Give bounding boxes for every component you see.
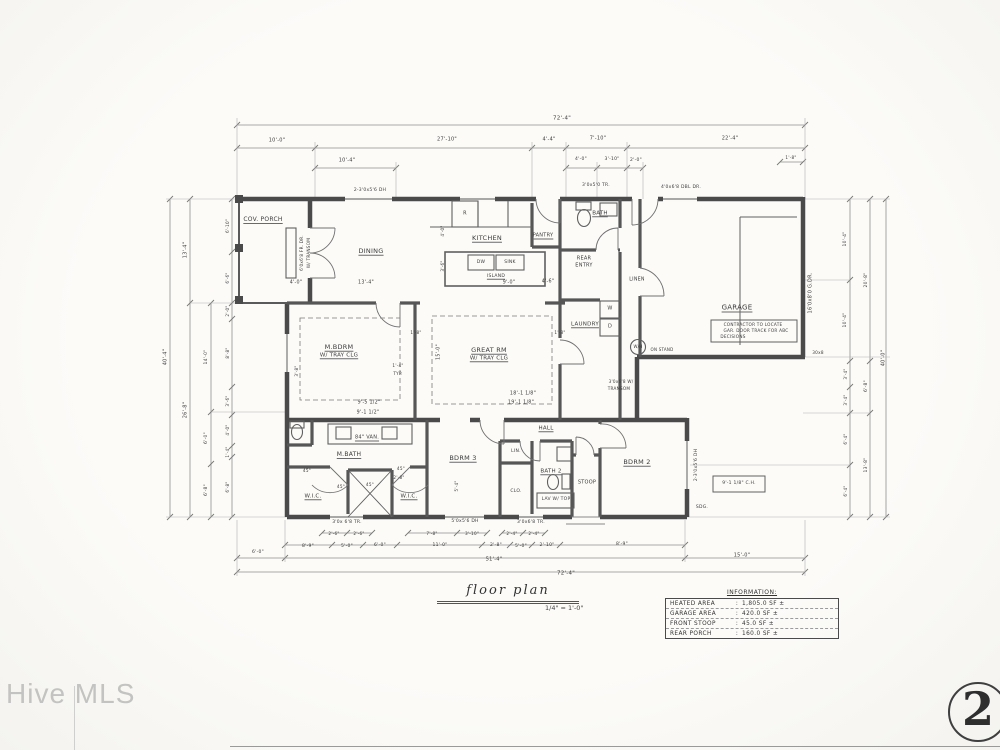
dim-text: 13'-8" [865, 457, 870, 472]
room-label: PANTRY [533, 234, 554, 239]
room-label: REAR [577, 257, 592, 262]
dim-text: 9'-1 1/2" [357, 412, 380, 417]
mls-watermark: Hive MLS [6, 678, 135, 710]
note-text: DECISIONS [720, 335, 745, 339]
dim-text: 4'-0" [226, 424, 230, 435]
dim-text: 40'-0" [882, 350, 887, 367]
dim-text: 6'-8" [226, 481, 230, 492]
dim-text: 45° [337, 485, 345, 489]
info-value: 1,805.0 SF ± [742, 601, 834, 607]
dim-text: 1'-4" [226, 446, 230, 457]
dim-text: 6'-8" [205, 484, 210, 496]
dim-text: 2'-8" [490, 544, 502, 549]
window-label: TRANSOM [608, 387, 631, 391]
dim-text: 10'-4" [844, 312, 849, 327]
dim-text: 1'-8" [785, 156, 796, 160]
dim-text: 6'-0" [205, 432, 210, 444]
dim-text: 20'-8" [865, 272, 870, 287]
dim-text: 27'-10" [437, 138, 457, 143]
scanned-page: COV. PORCHDININGKITCHENPANTRYBATHREARENT… [0, 0, 1000, 750]
dim-text: 1'-4" [392, 364, 403, 368]
dim-text: 3'-4" [844, 394, 848, 405]
drawing-title: floor plan [437, 583, 579, 598]
dim-text: 11'-0" [432, 544, 447, 549]
dim-text: 6'-0" [252, 551, 264, 556]
dim-text: 5'-0" [341, 545, 353, 550]
dim-text: 15'-0" [734, 554, 751, 559]
info-value: 45.0 SF ± [742, 621, 834, 627]
dim-text: 10'-0" [269, 139, 286, 144]
info-label: FRONT STOOP [670, 621, 732, 627]
dim-text: 7'-8" [426, 532, 437, 536]
dim-text: 2'-0" [226, 305, 230, 316]
room-label: CLO. [510, 490, 521, 495]
dim-text: 10'-4" [339, 159, 356, 164]
window-label: 5'0x5'6 DH [451, 520, 478, 525]
window-label: 2-3'0x5'6 DH [354, 189, 386, 194]
dim-text: 5'-4" [455, 480, 459, 491]
info-row: FRONT STOOP:45.0 SF ± [666, 619, 838, 629]
room-label: STOOP [578, 481, 596, 486]
title-block: floor plan [437, 583, 579, 598]
annotation-layer: COV. PORCHDININGKITCHENPANTRYBATHREARENT… [0, 0, 1000, 750]
dim-text: 2'-8" [393, 476, 404, 480]
dim-text: 7'-10" [590, 137, 607, 142]
dim-text: 8'-9" [616, 543, 628, 548]
room-label: BDRM 3 [449, 455, 476, 462]
dim-text: 2'-4" [528, 532, 539, 536]
window-label: 4'0x6'8 DBL DR. [661, 186, 701, 191]
dim-text: 6'-0" [374, 544, 386, 549]
fixture-label: LAV W/ TOP [542, 498, 571, 503]
info-label: HEATED AREA [670, 601, 732, 607]
window-label: 16'0x8'0 G.DR. [809, 273, 814, 314]
info-label: REAR PORCH [670, 631, 732, 637]
dim-text: 2'-10" [539, 544, 554, 549]
fixture-label: W/H [633, 345, 642, 349]
note-text: CONTRACTOR TO LOCATE [724, 323, 783, 327]
dim-text: 51'-4" [486, 558, 503, 563]
info-row: GARAGE AREA:420.0 SF ± [666, 609, 838, 619]
info-row: REAR PORCH:160.0 SF ± [666, 629, 838, 638]
window-label: 2-3'0x5'6 DH [695, 449, 700, 481]
fixture-label: R [463, 212, 467, 217]
room-label: BDRM 2 [623, 459, 650, 466]
dim-text: 3'-10" [604, 158, 619, 163]
room-label: DINING [358, 248, 383, 255]
dim-text: 2'-0" [630, 159, 642, 164]
dim-text: 6'-10" [226, 219, 230, 233]
info-label: GARAGE AREA [670, 611, 732, 617]
fixture-label: ISLAND [487, 275, 505, 280]
dim-text: 3'-6" [441, 260, 445, 271]
dim-text: TYP. [393, 372, 402, 376]
dim-text: 14'-0" [205, 349, 210, 364]
dim-text: 13'-4" [184, 242, 189, 259]
window-label: 3'0x 6'8 TR. [332, 521, 362, 526]
note-text: ON STAND [651, 348, 674, 352]
note-text: GAR. DOOR TRACK FOR ABC [724, 329, 789, 333]
room-label: LINEN [629, 279, 645, 284]
room-label: KITCHEN [472, 235, 502, 242]
dim-text: 4'-0" [441, 225, 445, 236]
room-label: BATH 2 [540, 469, 561, 475]
dim-text: 13'-4" [358, 282, 374, 287]
fixture-label: 84" VAN. [355, 436, 379, 441]
room-label: M.BATH [337, 452, 362, 458]
dim-text: 8'-9" [302, 545, 314, 550]
sheet-number: 2 [962, 682, 994, 736]
dim-text: 6'-8" [865, 380, 870, 392]
drawing-scale: 1/4" = 1'-0" [545, 604, 583, 612]
dim-text: 45° [397, 467, 405, 471]
dim-text: 6'-6" [226, 272, 230, 283]
info-value: 160.0 SF ± [742, 631, 834, 637]
dim-text: 9'-5 1/2" [358, 402, 381, 407]
dim-text: 10'-4" [844, 231, 849, 246]
fixture-label: W [607, 307, 612, 312]
room-label: BATH [592, 211, 608, 217]
room-label: M.BDRM [325, 344, 354, 351]
dim-text: 3'-8" [295, 365, 299, 376]
note-text: 30x8 [812, 351, 823, 355]
info-table: INFORMATION: HEATED AREA:1,805.0 SF ±GAR… [665, 589, 839, 639]
window-label: 3'0x6'8 TR. [517, 521, 545, 526]
info-table-rows: HEATED AREA:1,805.0 SF ±GARAGE AREA:420.… [665, 598, 839, 639]
dim-text: 26'-8" [184, 402, 189, 419]
window-label: 3'0x5'0 TR. [582, 184, 610, 189]
dim-text: 1'-8" [554, 331, 565, 335]
dim-text: 19'-1 1/8" [508, 402, 534, 407]
dim-text: 8'-8" [226, 347, 230, 358]
note-text: 9'-1 1/8" C.H. [722, 482, 756, 487]
fixture-label: DW [477, 261, 485, 266]
fixture-label: SINK [504, 261, 516, 266]
dim-text: 4'-6" [542, 281, 555, 286]
room-label: W/ TRAY CLG [470, 356, 508, 362]
dim-text: 3'-4" [844, 368, 848, 379]
dim-text: 40'-4" [164, 349, 169, 366]
note-text: SDG. [696, 506, 708, 511]
title-underline-1 [437, 601, 579, 602]
dim-text: 9'-0" [503, 282, 516, 287]
dim-text: 18'-1 1/8" [510, 393, 536, 398]
dim-text: 3'-6" [226, 395, 230, 406]
info-row: HEATED AREA:1,805.0 SF ± [666, 599, 838, 609]
room-label: GREAT RM [471, 347, 507, 354]
dim-text: 3'-10" [465, 532, 479, 536]
info-value: 420.0 SF ± [742, 611, 834, 617]
room-label: ENTRY [575, 264, 592, 269]
dim-text: 2'-4" [506, 532, 517, 536]
room-label: W/ TRAY CLG [320, 353, 358, 359]
dim-text: 72'-4" [553, 116, 571, 122]
dim-text: 6'-4" [844, 433, 848, 444]
dim-text: 1'-8" [410, 331, 421, 335]
dim-text: 15'-0" [438, 344, 443, 360]
scan-artifact-bottom-line [230, 746, 1000, 747]
dim-text: 6'-4" [844, 485, 848, 496]
info-separator: : [732, 631, 742, 637]
dim-text: 4'-4" [542, 138, 555, 143]
dim-text: 2'-6" [328, 532, 339, 536]
window-label: W/ TRANSOM [307, 238, 311, 268]
room-label: COV. PORCH [243, 217, 282, 223]
dim-text: 5'-0" [515, 545, 527, 550]
window-label: 3'0x6'8 W/ [609, 380, 634, 384]
dim-text: 45° [366, 483, 374, 487]
info-table-title: INFORMATION: [665, 589, 839, 596]
info-separator: : [732, 611, 742, 617]
dim-text: 4'-0" [575, 158, 587, 163]
fixture-label: D [608, 325, 612, 330]
dim-text: 4'-0" [290, 282, 303, 287]
room-label: W.I.C. [304, 494, 321, 500]
dim-text: 2'-6" [353, 532, 364, 536]
window-label: 6'0x6'8 FR. DR. [300, 235, 304, 271]
scan-artifact-vline [74, 686, 75, 750]
room-label: W.I.C. [400, 494, 417, 500]
info-separator: : [732, 621, 742, 627]
room-label: GARAGE [722, 305, 753, 312]
room-label: LIN. [511, 450, 521, 455]
dim-text: 22'-4" [722, 137, 739, 142]
dim-text: 45° [303, 469, 311, 473]
room-label: HALL [538, 426, 553, 432]
room-label: LAUNDRY [571, 322, 599, 328]
info-separator: : [732, 601, 742, 607]
dim-text: 72'-4" [557, 571, 575, 577]
